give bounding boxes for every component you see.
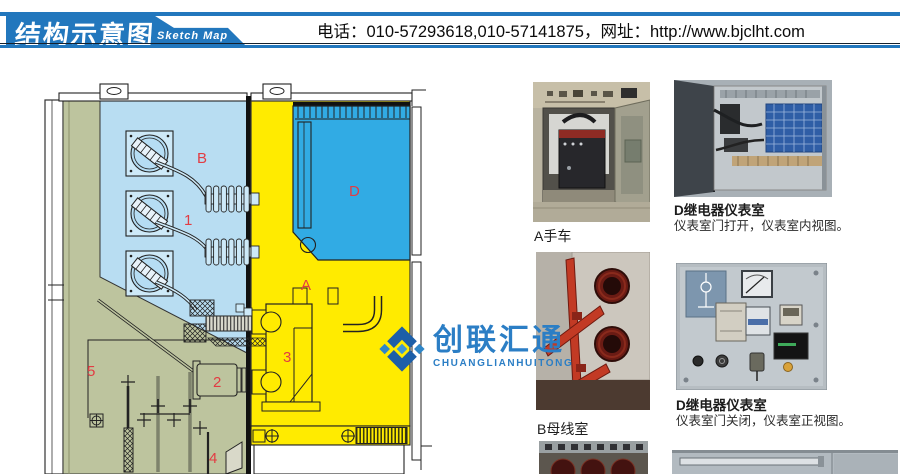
rear-wall: [45, 100, 63, 474]
catalog-page: 结构示意图 Sketch Map 电话：010-57293618,010-571…: [0, 0, 900, 474]
lifting-lug: [263, 84, 291, 99]
header-divider-blue: [0, 45, 900, 48]
busbar-bushing: [126, 251, 173, 296]
switchgear-structure-diagram: [40, 76, 532, 474]
contact-info: 电话：010-57293618,010-57141875，网址：http://w…: [317, 18, 805, 42]
front-door-outline: [412, 107, 421, 255]
brand-watermark: 创联汇通 CHUANGLIANHUITONG: [377, 324, 573, 374]
photo-d-closed: [676, 263, 827, 390]
bottom-band: [251, 426, 410, 445]
brand-name-en: CHUANGLIANHUITONG: [433, 358, 573, 369]
photo-bottom-right-partial: [672, 450, 898, 474]
brand-name-cn: 创联汇通: [433, 324, 573, 357]
busbar-bushing: [126, 191, 173, 236]
photo-a-handcart: [533, 82, 650, 222]
page-title-banner: 结构示意图 Sketch Map: [6, 13, 248, 46]
brand-logo-icon: [377, 324, 427, 374]
instrument-room-region: [293, 102, 410, 260]
photo-d-open: [674, 80, 832, 197]
page-title-en: Sketch Map: [157, 30, 228, 42]
photo-caption: B母线室: [537, 419, 588, 439]
busbar-bushing: [126, 131, 173, 176]
photo-subcaption: 仪表室门关闭，仪表室正视图。: [676, 410, 851, 429]
photo-bottom-left-partial: [539, 441, 648, 474]
photo-caption: A手车: [534, 226, 571, 246]
diagram-svg: [40, 76, 532, 474]
lifting-lug: [100, 84, 128, 99]
vent-grille: [356, 428, 407, 444]
photo-subcaption: 仪表室门打开，仪表室内视图。: [674, 215, 849, 234]
partition-wall: [246, 96, 251, 474]
top-rail-left: [59, 93, 247, 101]
